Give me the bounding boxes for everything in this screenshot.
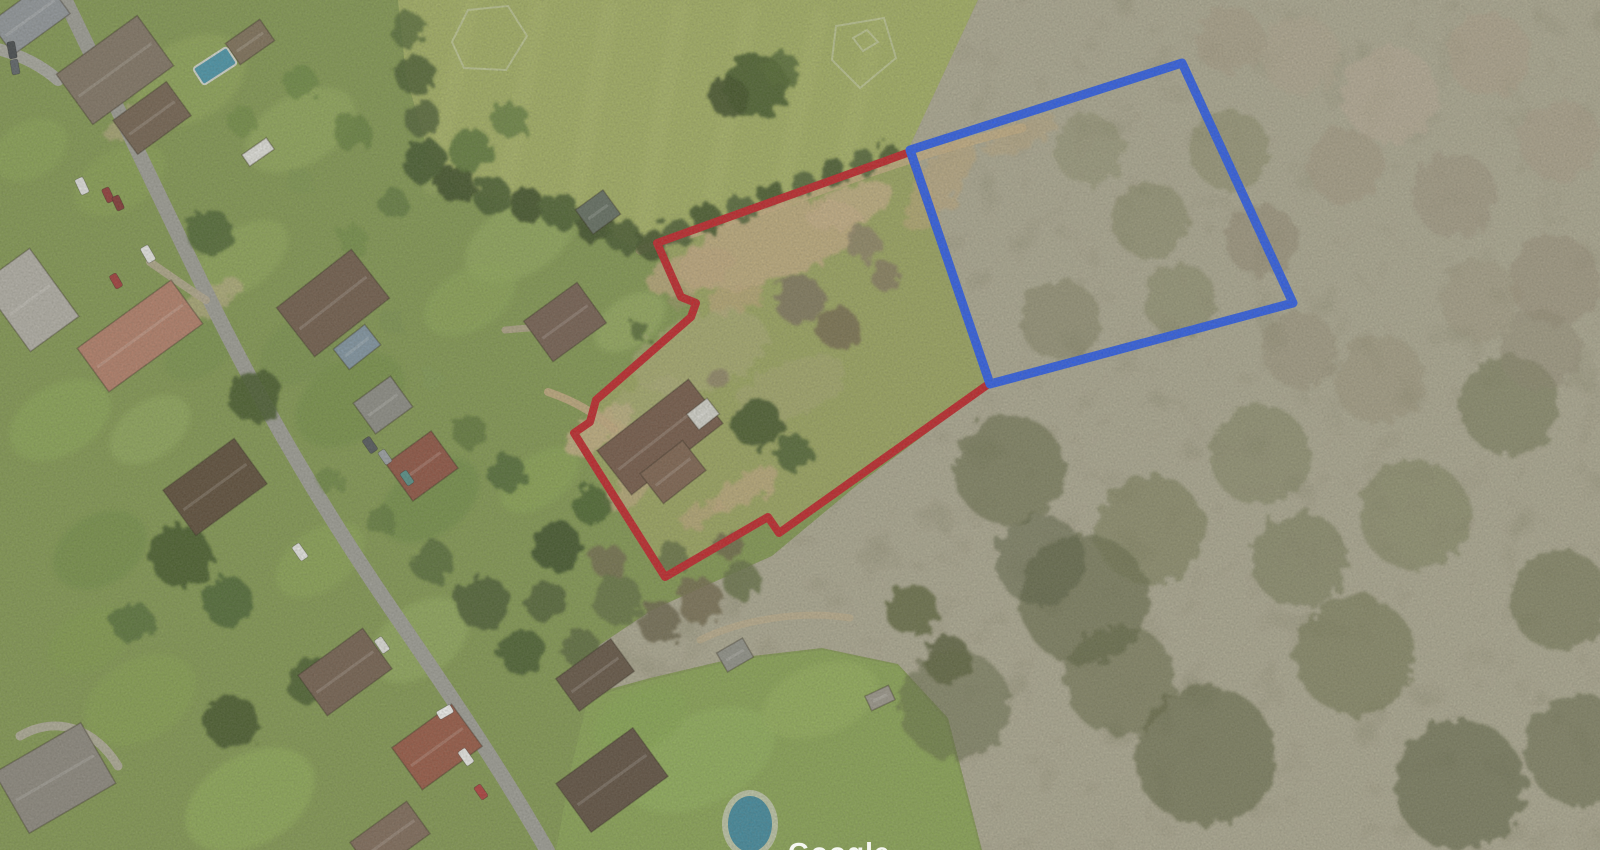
google-watermark: Google xyxy=(788,837,890,850)
aerial-map-screenshot: Google xyxy=(0,0,1600,850)
photo-grain-light xyxy=(0,0,1600,850)
satellite-image: Google xyxy=(0,0,1600,850)
